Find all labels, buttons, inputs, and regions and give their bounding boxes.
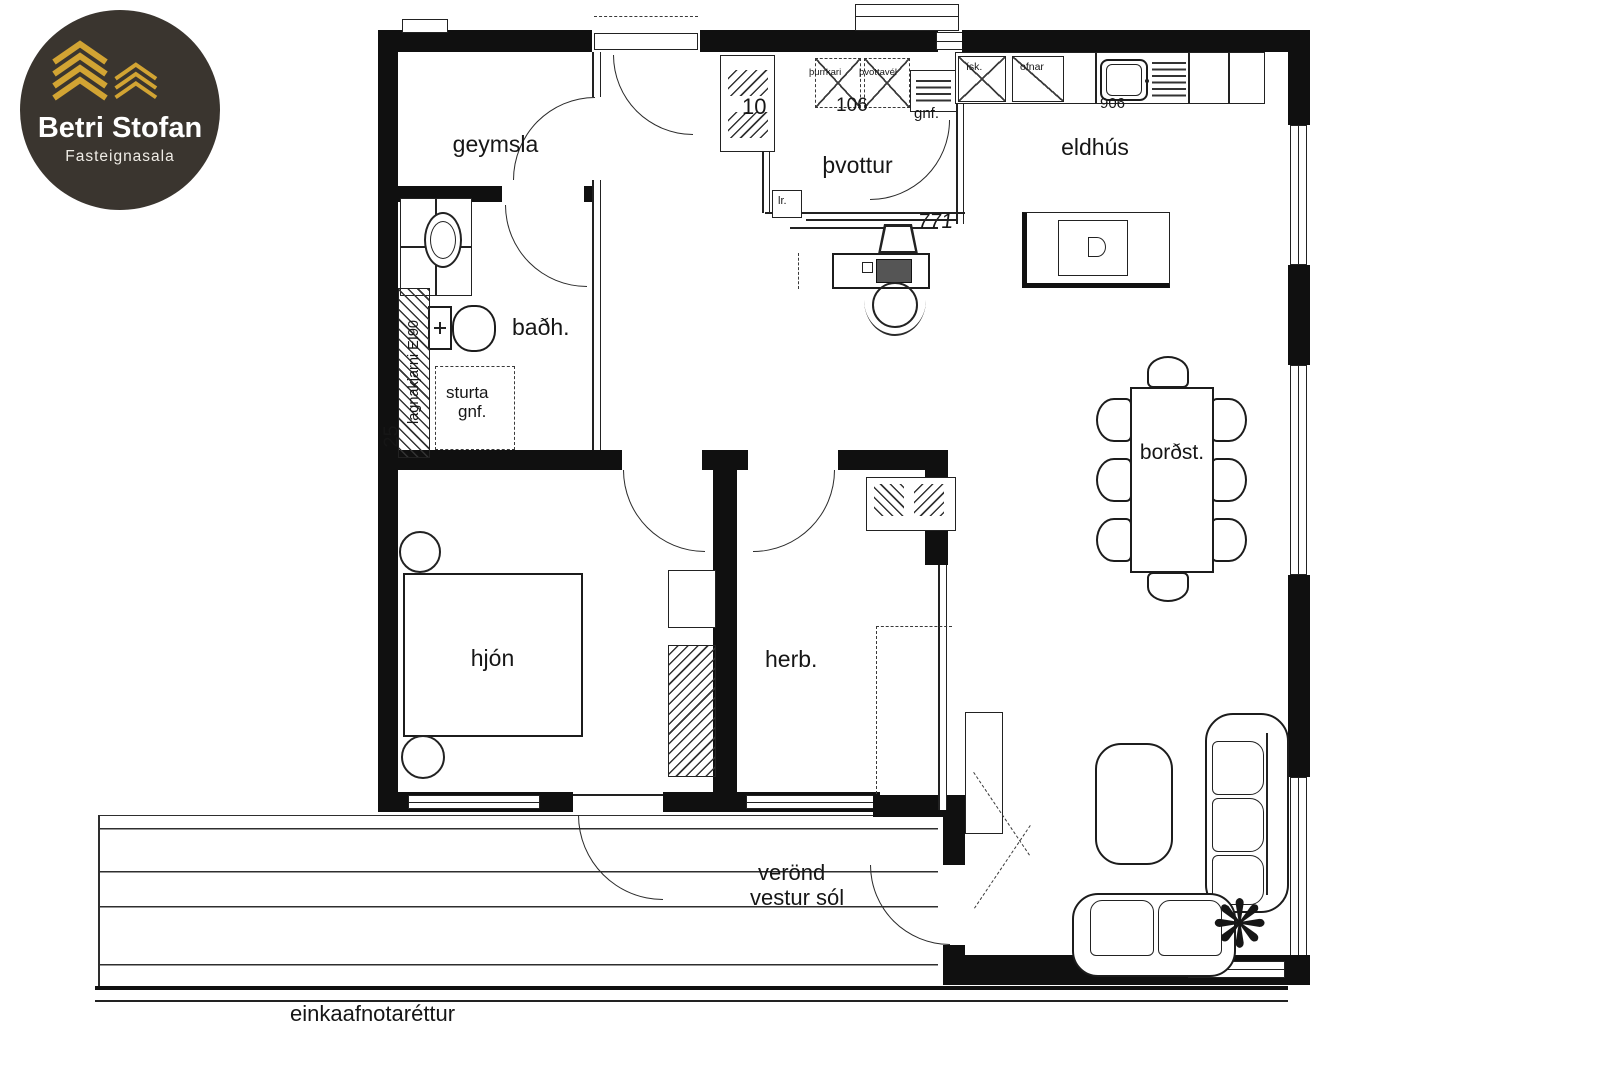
partition-hall-lower [592, 180, 601, 450]
room-label-storage: geymsla [398, 132, 593, 156]
wall-top-middle [700, 30, 938, 52]
tv-cabinet [965, 712, 1003, 834]
wall-bottom-4 [873, 795, 965, 817]
sofa-cushion-2 [1212, 798, 1264, 852]
window-right-3 [1290, 777, 1307, 970]
fridge-label: ísk. [966, 62, 982, 73]
monitor-icon [878, 224, 918, 254]
wall-right-1 [1288, 30, 1310, 125]
bedside-stool-1 [399, 531, 441, 573]
door-arc-bath [505, 205, 587, 287]
partition-laundry-bottom-2 [790, 227, 938, 229]
dining-chair-right-1 [1211, 398, 1247, 442]
room-label-kitchen: eldhús [1030, 135, 1160, 159]
veranda-edge-line [95, 1000, 1288, 1002]
room-label-bedroom: herb. [765, 647, 817, 671]
veranda-boundary-line [95, 986, 1288, 990]
master-wardrobe-tall [668, 645, 716, 777]
dining-chair-right-2 [1211, 458, 1247, 502]
counter-divider-1 [1095, 52, 1097, 104]
door-arc-master [623, 470, 705, 552]
brand-subtitle: Fasteignasala [20, 148, 220, 166]
wall-living-west-1 [943, 817, 965, 865]
plant-icon: ❋ [1212, 890, 1267, 959]
wall-bedrooms-top-2 [702, 450, 748, 470]
dim-906: 906 [1100, 96, 1125, 112]
bay-outline-top [855, 4, 959, 31]
closet-hatch-1 [728, 70, 768, 96]
entrance-overhang-dashed [594, 16, 698, 27]
wall-right-3 [1288, 575, 1310, 777]
ovens-label: ofnar [1020, 62, 1044, 73]
shower-label-2: gnf. [458, 403, 486, 421]
easement-label: einkaafnotaréttur [290, 1002, 455, 1025]
wall-bottom-2 [663, 792, 740, 812]
coffee-table [1095, 743, 1173, 865]
dining-chair-left-1 [1096, 398, 1132, 442]
window-right-2 [1290, 365, 1307, 575]
projection-dashed-2 [974, 825, 1031, 908]
brand-name: Betri Stofan [20, 112, 220, 145]
bay-inner-line [856, 16, 958, 17]
water-heater-stripes [916, 80, 951, 106]
loveseat-cushion-1 [1090, 900, 1154, 956]
floorplan-page: Betri Stofan Fasteignasala [0, 0, 1600, 1067]
closet-number: 10 [742, 95, 766, 118]
toilet-mark-v [439, 322, 441, 334]
wall-top-right [962, 30, 1310, 52]
dining-table [1130, 387, 1214, 573]
monitor-inner [881, 227, 915, 251]
window-bedroom [746, 795, 874, 809]
island-hob-icon [1088, 237, 1106, 257]
door-threshold-master [573, 794, 663, 796]
desk-dashed-left [798, 253, 801, 289]
bedroom-dashed-h [876, 626, 952, 629]
desk-accessory [862, 262, 873, 273]
dim-771: 771 [916, 211, 954, 233]
room-label-master: hjón [405, 646, 580, 670]
entrance-door-frame [594, 33, 698, 50]
dim-25: 25 [381, 417, 404, 457]
toilet-bowl-icon [452, 305, 496, 352]
kitchen-sink-basin [1106, 64, 1142, 96]
sink-faucet-dot [1145, 79, 1149, 83]
bedside-stool-2 [401, 735, 445, 779]
laundry-vent-label: gnf. [914, 106, 939, 122]
door-arc-entrance [613, 55, 693, 135]
wardrobe-hatch-1 [874, 484, 904, 516]
dining-room-label: borðst. [1130, 442, 1214, 464]
sofa-back-line [1266, 733, 1268, 895]
room-label-bath: baðh. [512, 315, 570, 339]
dryer-label: þurrkari [809, 68, 841, 78]
dim-106: 106 [836, 96, 868, 116]
sofa-cushion-1 [1212, 741, 1264, 795]
desk-wall-line [806, 219, 958, 221]
veranda-label-1: verönd [758, 861, 825, 884]
laptop-icon [876, 259, 912, 283]
partition-hall-upper [592, 52, 601, 97]
washer-label: þvottavél [859, 68, 897, 78]
wall-top-left [378, 30, 592, 52]
veranda-label-2: vestur sól [750, 886, 844, 909]
drainboard-stripes [1152, 62, 1186, 100]
window-right-1 [1290, 125, 1307, 265]
room-label-laundry: þvottur [795, 153, 920, 177]
washer-icon [864, 58, 910, 108]
desk-chair-backrest [864, 300, 926, 336]
plumbing-core-label: lagnakjarni EI90 [406, 310, 422, 434]
wardrobe-hatch-2 [914, 484, 944, 516]
floor-drain-label: lr. [778, 196, 787, 208]
shower-label-1: sturta [446, 384, 489, 402]
bath-basin-inner [430, 221, 456, 259]
counter-divider-3 [1228, 52, 1230, 104]
bedroom-dashed-v [876, 626, 879, 794]
master-wardrobe-top [668, 570, 716, 628]
wall-right-2 [1288, 265, 1310, 365]
floor-drain-box [772, 190, 802, 218]
window-top-small [936, 32, 964, 50]
window-master-bedroom [408, 795, 540, 809]
dining-chair-right-3 [1211, 518, 1247, 562]
dining-chair-bottom [1147, 572, 1189, 602]
dining-chair-left-2 [1096, 458, 1132, 502]
wall-master-bedroom-divider [713, 470, 737, 792]
chevrons-icon [52, 38, 182, 112]
door-arc-bedroom [753, 470, 835, 552]
dining-chair-left-3 [1096, 518, 1132, 562]
dining-chair-top [1147, 356, 1189, 388]
counter-divider-2 [1188, 52, 1190, 104]
partition-living-west [938, 565, 947, 810]
brand-logo: Betri Stofan Fasteignasala [20, 10, 220, 210]
window-bump-storage [402, 19, 448, 33]
